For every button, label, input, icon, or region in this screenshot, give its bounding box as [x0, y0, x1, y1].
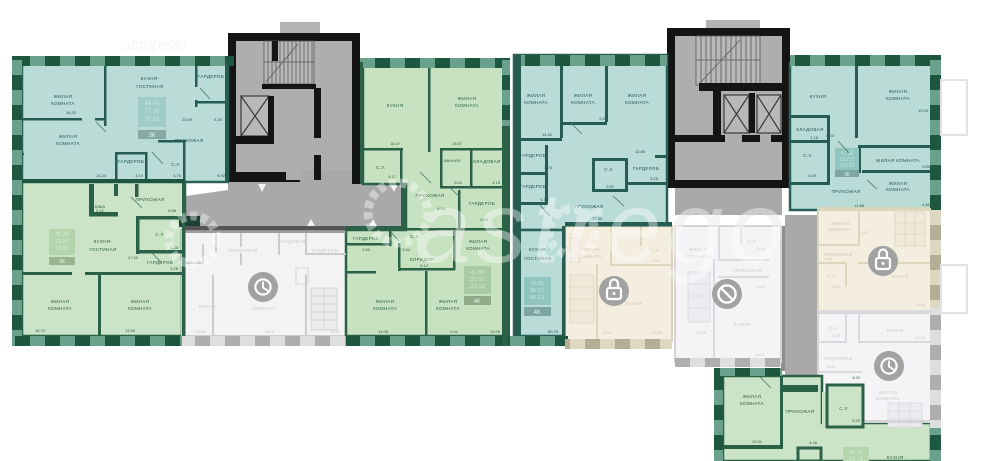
svg-text:КОМНАТА: КОМНАТА: [56, 141, 80, 146]
svg-text:4.92: 4.92: [852, 375, 861, 380]
svg-text:КЛАДОВАЯ: КЛАДОВАЯ: [473, 159, 500, 164]
svg-text:ЖИЛАЯ: ЖИЛАЯ: [743, 394, 761, 399]
svg-text:С.У.: С.У.: [828, 326, 837, 331]
svg-text:КОМНАТА: КОМНАТА: [51, 101, 75, 106]
svg-text:ЖИЛАЯ: ЖИЛАЯ: [889, 89, 907, 94]
svg-text:6.97: 6.97: [757, 284, 766, 289]
svg-text:КОМНАТА: КОМНАТА: [876, 396, 900, 401]
svg-text:КОМНАТА: КОМНАТА: [128, 306, 152, 311]
svg-text:9.41: 9.41: [450, 329, 459, 334]
svg-text:4.17: 4.17: [388, 174, 397, 179]
svg-text:2.12: 2.12: [96, 208, 105, 213]
svg-text:86.53: 86.53: [530, 288, 544, 294]
svg-text:15.87: 15.87: [452, 141, 463, 146]
svg-text:С.У.: С.У.: [171, 162, 180, 167]
svg-text:2.16: 2.16: [810, 135, 819, 140]
svg-text:КЛАДОВАЯ: КЛАДОВАЯ: [796, 127, 823, 132]
svg-text:КОМНАТА: КОМНАТА: [373, 306, 397, 311]
svg-text:КОМНАТА: КОМНАТА: [524, 100, 548, 105]
svg-text:4К: 4К: [474, 299, 481, 305]
svg-text:14.42: 14.42: [542, 132, 553, 137]
svg-text:КУХНЯ-: КУХНЯ-: [94, 239, 113, 244]
svg-text:ЖИЛАЯ: ЖИЛАЯ: [831, 221, 849, 226]
svg-text:5.35: 5.35: [214, 117, 223, 122]
svg-text:С.У.: С.У.: [155, 232, 164, 237]
svg-text:5.92: 5.92: [852, 418, 861, 423]
svg-text:ЖИЛАЯ: ЖИЛАЯ: [439, 299, 457, 304]
svg-text:КОМНАТА: КОМНАТА: [455, 103, 479, 108]
svg-text:ПРИХОЖАЯ: ПРИХОЖАЯ: [785, 409, 814, 414]
svg-text:16.23: 16.23: [66, 110, 77, 115]
svg-text:86.53: 86.53: [530, 295, 544, 301]
svg-text:14.24: 14.24: [96, 173, 107, 178]
svg-text:КУХНЯ-: КУХНЯ-: [887, 455, 906, 460]
svg-text:75.02: 75.02: [144, 117, 160, 123]
svg-text:ЖИЛАЯ КОМНАТА: ЖИЛАЯ КОМНАТА: [876, 158, 921, 163]
svg-text:4.46: 4.46: [809, 440, 818, 445]
svg-text:С.У.: С.У.: [376, 165, 385, 170]
svg-text:3.53: 3.53: [832, 333, 841, 338]
svg-text:С.У.: С.У.: [803, 153, 812, 158]
svg-text:КОМНАТА: КОМНАТА: [252, 306, 276, 311]
svg-text:КУХНЯ-: КУХНЯ-: [141, 76, 160, 81]
svg-text:ГАРДЕРОБ: ГАРДЕРОБ: [312, 248, 338, 253]
svg-text:39.33: 39.33: [849, 450, 863, 456]
svg-text:КУХНЯ: КУХНЯ: [199, 304, 216, 309]
svg-text:ЖИЛАЯ: ЖИЛАЯ: [458, 96, 476, 101]
svg-text:23.66: 23.66: [652, 330, 663, 335]
svg-text:8.88: 8.88: [168, 208, 177, 213]
svg-text:16.47: 16.47: [390, 141, 401, 146]
svg-text:3.44: 3.44: [402, 247, 411, 252]
svg-text:astrego: astrego: [415, 172, 791, 284]
svg-text:4.76: 4.76: [173, 173, 182, 178]
svg-text:КУХНЯ: КУХНЯ: [892, 274, 909, 279]
svg-text:46.38: 46.38: [55, 232, 69, 238]
svg-text:ЖИЛАЯ: ЖИЛАЯ: [574, 93, 592, 98]
svg-text:3.28: 3.28: [170, 266, 179, 271]
svg-text:63.76: 63.76: [849, 457, 863, 461]
svg-text:ВАННАЯ: ВАННАЯ: [444, 158, 461, 163]
svg-text:С.У.: С.У.: [839, 406, 848, 411]
svg-text:48.43: 48.43: [144, 101, 160, 107]
svg-text:КУХНЯ: КУХНЯ: [734, 322, 751, 327]
svg-text:9.80: 9.80: [599, 116, 608, 121]
svg-text:КОМНАТА: КОМНАТА: [436, 306, 460, 311]
svg-text:ЖИЛАЯ: ЖИЛАЯ: [131, 299, 149, 304]
svg-text:13.44: 13.44: [195, 329, 206, 334]
svg-text:17.34: 17.34: [696, 330, 707, 335]
svg-text:ПРИХОЖАЯ: ПРИХОЖАЯ: [135, 197, 164, 202]
svg-text:ГАРДЕРОБ: ГАРДЕРОБ: [520, 153, 546, 158]
svg-text:ЖИЛАЯ: ЖИЛАЯ: [54, 94, 72, 99]
svg-text:8.43: 8.43: [826, 133, 835, 138]
svg-text:КОМНАТА: КОМНАТА: [571, 100, 595, 105]
svg-text:ЖИЛАЯ: ЖИЛАЯ: [628, 93, 646, 98]
svg-text:ГАРДЕРОБ: ГАРДЕРОБ: [198, 74, 224, 79]
svg-text:ГОСТИНАЯ: ГОСТИНАЯ: [136, 84, 163, 89]
svg-text:ПРИХОЖАЯ: ПРИХОЖАЯ: [823, 356, 852, 361]
svg-text:73.87: 73.87: [55, 246, 69, 252]
svg-text:ЖИЛАЯ: ЖИЛАЯ: [889, 181, 907, 186]
svg-text:3.94: 3.94: [832, 284, 841, 289]
svg-text:ЖИЛАЯ: ЖИЛАЯ: [527, 93, 545, 98]
svg-text:17.04: 17.04: [602, 330, 613, 335]
svg-text:19.29: 19.29: [490, 329, 501, 334]
svg-text:2.50: 2.50: [362, 247, 371, 252]
svg-text:4.80: 4.80: [922, 202, 931, 207]
svg-text:17.83: 17.83: [858, 230, 869, 235]
svg-text:110.53: 110.53: [469, 284, 485, 290]
svg-text:ЖИЛАЯ: ЖИЛАЯ: [59, 134, 77, 139]
svg-text:77.30: 77.30: [144, 109, 160, 115]
svg-text:20.99: 20.99: [182, 117, 193, 122]
svg-text:ГОСТИНАЯ: ГОСТИНАЯ: [89, 247, 116, 252]
svg-text:3.10: 3.10: [135, 173, 144, 178]
svg-text:КОМНАТА: КОМНАТА: [886, 187, 910, 192]
svg-text:ПРИХОЖАЯ: ПРИХОЖАЯ: [228, 248, 257, 253]
svg-text:5.02: 5.02: [827, 364, 836, 369]
svg-text:ПРИХОЖАЯ: ПРИХОЖАЯ: [831, 189, 860, 194]
svg-text:КОМНАТА: КОМНАТА: [828, 227, 852, 232]
svg-text:ЖИЛАЯ: ЖИЛАЯ: [376, 299, 394, 304]
svg-text:4.70: 4.70: [544, 165, 553, 170]
svg-text:12.41: 12.41: [755, 352, 766, 357]
svg-text:13.45: 13.45: [915, 302, 926, 307]
svg-text:14.08: 14.08: [378, 329, 389, 334]
svg-text:КОМНАТА: КОМНАТА: [625, 100, 649, 105]
svg-text:10.45: 10.45: [915, 335, 926, 340]
svg-text:16.72: 16.72: [35, 328, 46, 333]
svg-text:60.23: 60.23: [548, 329, 559, 334]
svg-text:13.59: 13.59: [125, 328, 136, 333]
svg-text:8.92: 8.92: [217, 173, 226, 178]
svg-text:3К: 3К: [149, 133, 156, 139]
svg-text:КУХНЯ: КУХНЯ: [810, 94, 827, 99]
svg-text:ЖИЛАЯ: ЖИЛАЯ: [879, 390, 897, 395]
svg-text:КУХНЯ: КУХНЯ: [887, 328, 904, 333]
svg-text:12.91: 12.91: [752, 439, 763, 444]
svg-text:27.40: 27.40: [128, 255, 139, 260]
svg-text:12.85: 12.85: [635, 149, 646, 154]
svg-text:9.50: 9.50: [922, 164, 931, 169]
svg-text:КУХНЯ: КУХНЯ: [387, 103, 404, 108]
svg-text:13.01: 13.01: [265, 329, 276, 334]
svg-text:2К: 2К: [59, 259, 66, 265]
svg-text:11.88: 11.88: [854, 203, 864, 208]
svg-text:3К: 3К: [844, 172, 850, 178]
svg-text:73.87: 73.87: [55, 239, 69, 245]
svg-text:4.00: 4.00: [808, 173, 817, 178]
svg-text:КОМНАТА: КОМНАТА: [48, 306, 72, 311]
svg-text:КОМНАТА: КОМНАТА: [886, 96, 910, 101]
svg-text:КОМНАТА: КОМНАТА: [740, 401, 764, 406]
svg-text:ГАРДЕРОБ: ГАРДЕРОБ: [633, 166, 659, 171]
svg-text:КУХНЯ: КУХНЯ: [626, 301, 643, 306]
svg-text:110.53: 110.53: [840, 163, 855, 169]
svg-text:4К: 4К: [534, 310, 541, 316]
svg-text:ГАРДЕРОБ: ГАРДЕРОБ: [118, 159, 144, 164]
svg-text:астрего: астрего: [122, 37, 187, 54]
svg-text:КЛАДОВАЯ: КЛАДОВАЯ: [278, 239, 305, 244]
svg-text:ПРИХОЖАЯ: ПРИХОЖАЯ: [174, 138, 203, 143]
svg-text:12.03: 12.03: [918, 108, 929, 113]
svg-text:ЖИЛАЯ: ЖИЛАЯ: [51, 299, 69, 304]
svg-text:3.06: 3.06: [824, 256, 833, 261]
svg-text:С.У.: С.У.: [827, 274, 836, 279]
